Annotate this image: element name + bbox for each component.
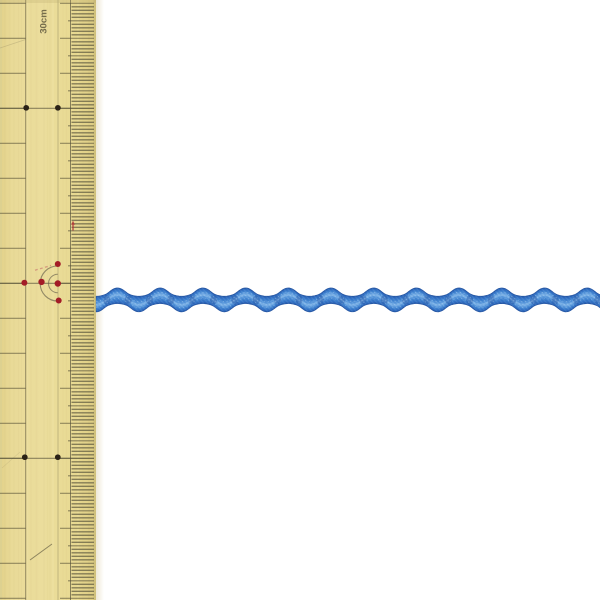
svg-text:30cm: 30cm xyxy=(39,9,50,34)
